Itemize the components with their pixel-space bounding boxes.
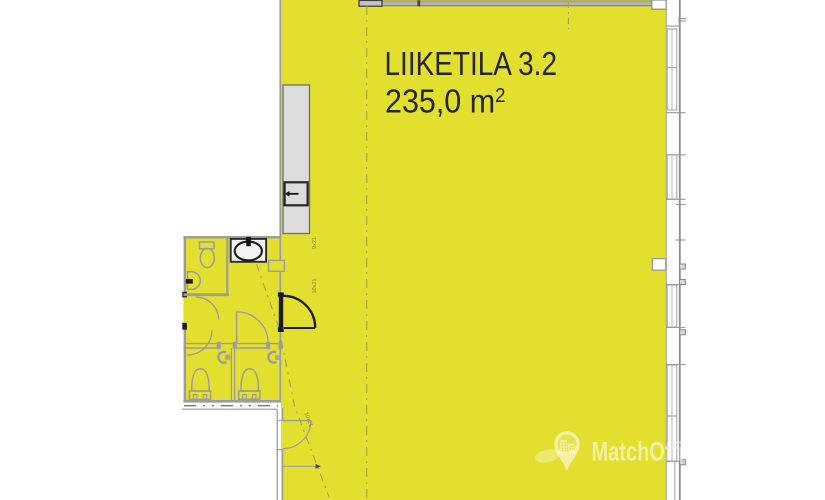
- svg-text:LIIKETILA 3.2: LIIKETILA 3.2: [385, 46, 558, 83]
- svg-text:MatchOffice: MatchOffice: [592, 437, 707, 467]
- svg-text:9x21: 9x21: [312, 237, 318, 249]
- svg-text:10x21: 10x21: [312, 279, 318, 294]
- svg-text:235,0 m2: 235,0 m2: [385, 83, 506, 120]
